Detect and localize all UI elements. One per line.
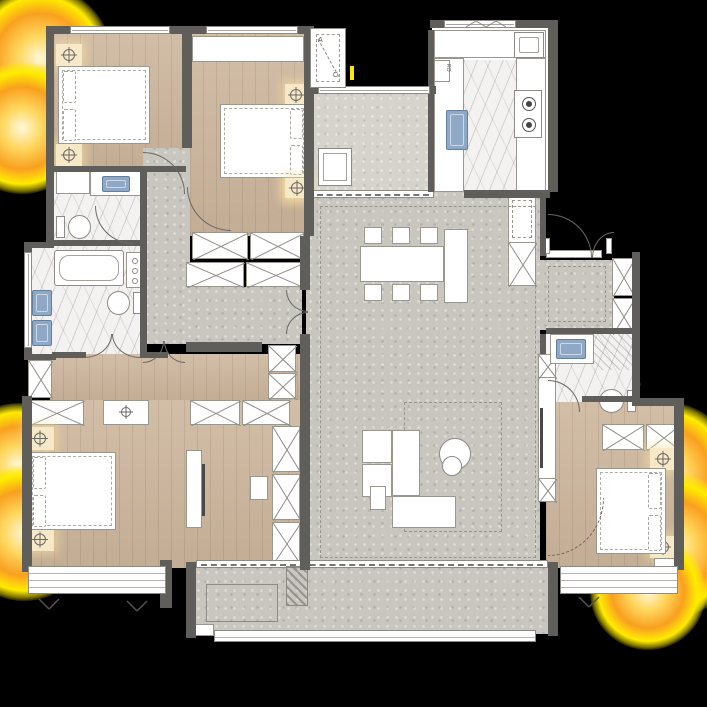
- storage-cabinet-1-icon: [193, 233, 249, 260]
- wall-living-right: [540, 198, 546, 256]
- dressing-cabinet-left: [28, 360, 52, 398]
- master-bed-pillow-2: [33, 495, 46, 527]
- kitchen-stove-icon: [515, 91, 543, 139]
- wall-dressing-top: [186, 342, 262, 352]
- balcony-planter: [206, 584, 278, 622]
- window-arrow-3-icon: [578, 596, 600, 608]
- wall-left-upper: [46, 26, 54, 248]
- balcony-column: [286, 566, 308, 606]
- master-cabinet-row-3: [242, 400, 290, 425]
- bath1-shelf: [56, 170, 90, 194]
- master-bay-window: [28, 566, 166, 594]
- wall-bath2-bottom: [582, 396, 634, 402]
- living-tv: [540, 408, 543, 468]
- wall-balcony-left: [186, 562, 196, 638]
- bed-1-pillow-2: [63, 109, 76, 141]
- storage-cabinet-1: [192, 232, 248, 259]
- kitchen-window-zigzag: [466, 20, 506, 28]
- entry-mat-dash: [548, 266, 606, 322]
- dressing-cabinet-1: [268, 345, 296, 372]
- kitchen-ro-label: RO: [436, 64, 450, 78]
- storage-cabinet-2: [250, 232, 304, 259]
- yellow-mark: [350, 66, 354, 80]
- living-balcony-slide-door: [196, 560, 548, 568]
- kitchen-stove: [514, 90, 542, 138]
- wall-entry-bottom: [546, 328, 634, 334]
- master-wardrobe-1-icon: [273, 427, 301, 473]
- ac-unit: AC: [310, 28, 346, 88]
- nightstand-lamp-2: [56, 144, 82, 166]
- balcony-railing: [214, 630, 536, 642]
- bed3-nightstand-lamp-1: [650, 448, 676, 470]
- door-arc-entry-small: [592, 232, 614, 258]
- upper-balcony-slide-door: [312, 190, 434, 198]
- master-cabinet-row-2: [190, 400, 240, 425]
- laundry-toilet-bowl: [107, 291, 130, 315]
- bath1-toilet-tank: [56, 216, 65, 238]
- dressing-cabinet-2: [268, 373, 296, 399]
- wall-upper-balcony-left: [308, 88, 314, 196]
- nightstand-lamp-2-icon: [56, 144, 82, 166]
- dressing-cabinet-1-icon: [269, 346, 297, 373]
- bed-1-pillow-1: [63, 71, 76, 103]
- wall-master-left: [22, 396, 32, 572]
- window-left-bay: [24, 252, 32, 348]
- kitchen-floor-marble: [464, 60, 516, 192]
- master-ceiling-lamp-icon: [119, 405, 133, 419]
- kitchen-window-zigzag-icon: [466, 20, 506, 28]
- window-arrow-1: [38, 598, 60, 610]
- master-tv-console: [186, 450, 202, 528]
- master-wardrobe-1: [272, 426, 300, 472]
- storage-cabinet-4-icon: [247, 263, 305, 288]
- bed-2-pillow-2: [290, 145, 303, 175]
- master-cabinet-row-1-icon: [29, 401, 85, 426]
- bed-2-pillow-1: [290, 109, 303, 139]
- wall-kitchen-bottom: [464, 190, 550, 198]
- bedroom2-closet: [192, 36, 304, 62]
- storage-cabinet-3-icon: [187, 263, 245, 288]
- storage-cabinet-4: [246, 262, 304, 287]
- bath1-toilet: [56, 214, 92, 240]
- door-arc-entry-main: [548, 214, 592, 258]
- master-bed-pillow-1: [33, 457, 46, 489]
- bathtub: [54, 250, 124, 286]
- window-arrow-1-icon: [38, 598, 60, 610]
- laundry-sink-1: [32, 290, 52, 316]
- master-wardrobe-2-icon: [273, 475, 301, 521]
- bath2-shower: [594, 332, 634, 370]
- window-arrow-2-icon: [126, 600, 148, 612]
- wall-living-left: [300, 334, 310, 570]
- storage-cabinet-3: [186, 262, 244, 287]
- bed-2: [220, 104, 308, 178]
- wall-bath2-right: [632, 334, 640, 402]
- master-cabinet-row-3-icon: [243, 401, 291, 426]
- wall-balcony-right: [548, 562, 558, 636]
- wall-bed3-right: [674, 398, 684, 570]
- wall-bed1-bed2: [182, 26, 192, 148]
- wall-laundry-bottom-1: [52, 352, 86, 358]
- laundry-toilet: [106, 290, 142, 316]
- bed-3-pillow-1: [648, 473, 661, 509]
- hallway-floor-2: [185, 287, 302, 344]
- nightstand-lamp-1: [56, 44, 82, 66]
- nightstand-lamp-1-icon: [56, 44, 82, 66]
- wall-entry-right: [632, 252, 640, 336]
- bed3-nightstand-lamp-1-icon: [650, 448, 676, 470]
- wall-kitchen-right: [548, 20, 558, 192]
- bed-3: [596, 468, 666, 554]
- living-ceiling-dash: [320, 206, 536, 558]
- bed3-bay-window: [560, 566, 678, 594]
- master-bench: [250, 476, 268, 500]
- wall-corridor-right: [140, 172, 147, 356]
- laundry-sink-2: [32, 320, 52, 346]
- master-wardrobe-3-icon: [273, 523, 301, 565]
- wall-bath2-left: [540, 334, 546, 354]
- master-ceiling-lamp: [119, 405, 133, 419]
- fridge: [514, 32, 544, 58]
- master-tv: [202, 464, 205, 516]
- master-bed: [28, 452, 116, 530]
- bed-3-pillow-2: [648, 515, 661, 551]
- dressing-cabinet-left-icon: [29, 361, 53, 399]
- storage-cabinet-2-icon: [251, 233, 305, 260]
- bath1-toilet-bowl: [68, 215, 91, 239]
- dressing-cabinet-2-icon: [269, 374, 297, 400]
- ac-label-top: A: [318, 37, 323, 44]
- entry-cabinet-1: [612, 258, 634, 296]
- floor-plan: ROAC: [0, 0, 707, 707]
- master-wardrobe-3: [272, 522, 300, 564]
- window-bed2: [206, 26, 298, 34]
- wall-bath2-bed3: [632, 398, 678, 406]
- window-arrow-3: [578, 596, 600, 608]
- window-bed1: [70, 26, 170, 34]
- bed3-wardrobe-1-icon: [603, 425, 645, 451]
- kitchen-sink: [446, 110, 468, 150]
- master-cabinet-row-1: [28, 400, 84, 425]
- bath2-sink: [556, 339, 586, 359]
- bed-1: [58, 66, 150, 144]
- dressing-floor: [50, 354, 300, 400]
- bed3-wardrobe-1: [602, 424, 644, 450]
- washing-machine: [318, 148, 352, 186]
- wall-kitchen-left: [428, 30, 434, 192]
- wall-living-left-upper: [300, 236, 310, 290]
- bath1-sink: [102, 176, 130, 192]
- ac-label-bottom: C: [333, 72, 338, 79]
- master-wardrobe-2: [272, 474, 300, 520]
- window-arrow-2: [126, 600, 148, 612]
- balcony-step: [194, 624, 214, 636]
- ac-unit-icon: [311, 29, 347, 89]
- master-cabinet-row-2-icon: [191, 401, 241, 426]
